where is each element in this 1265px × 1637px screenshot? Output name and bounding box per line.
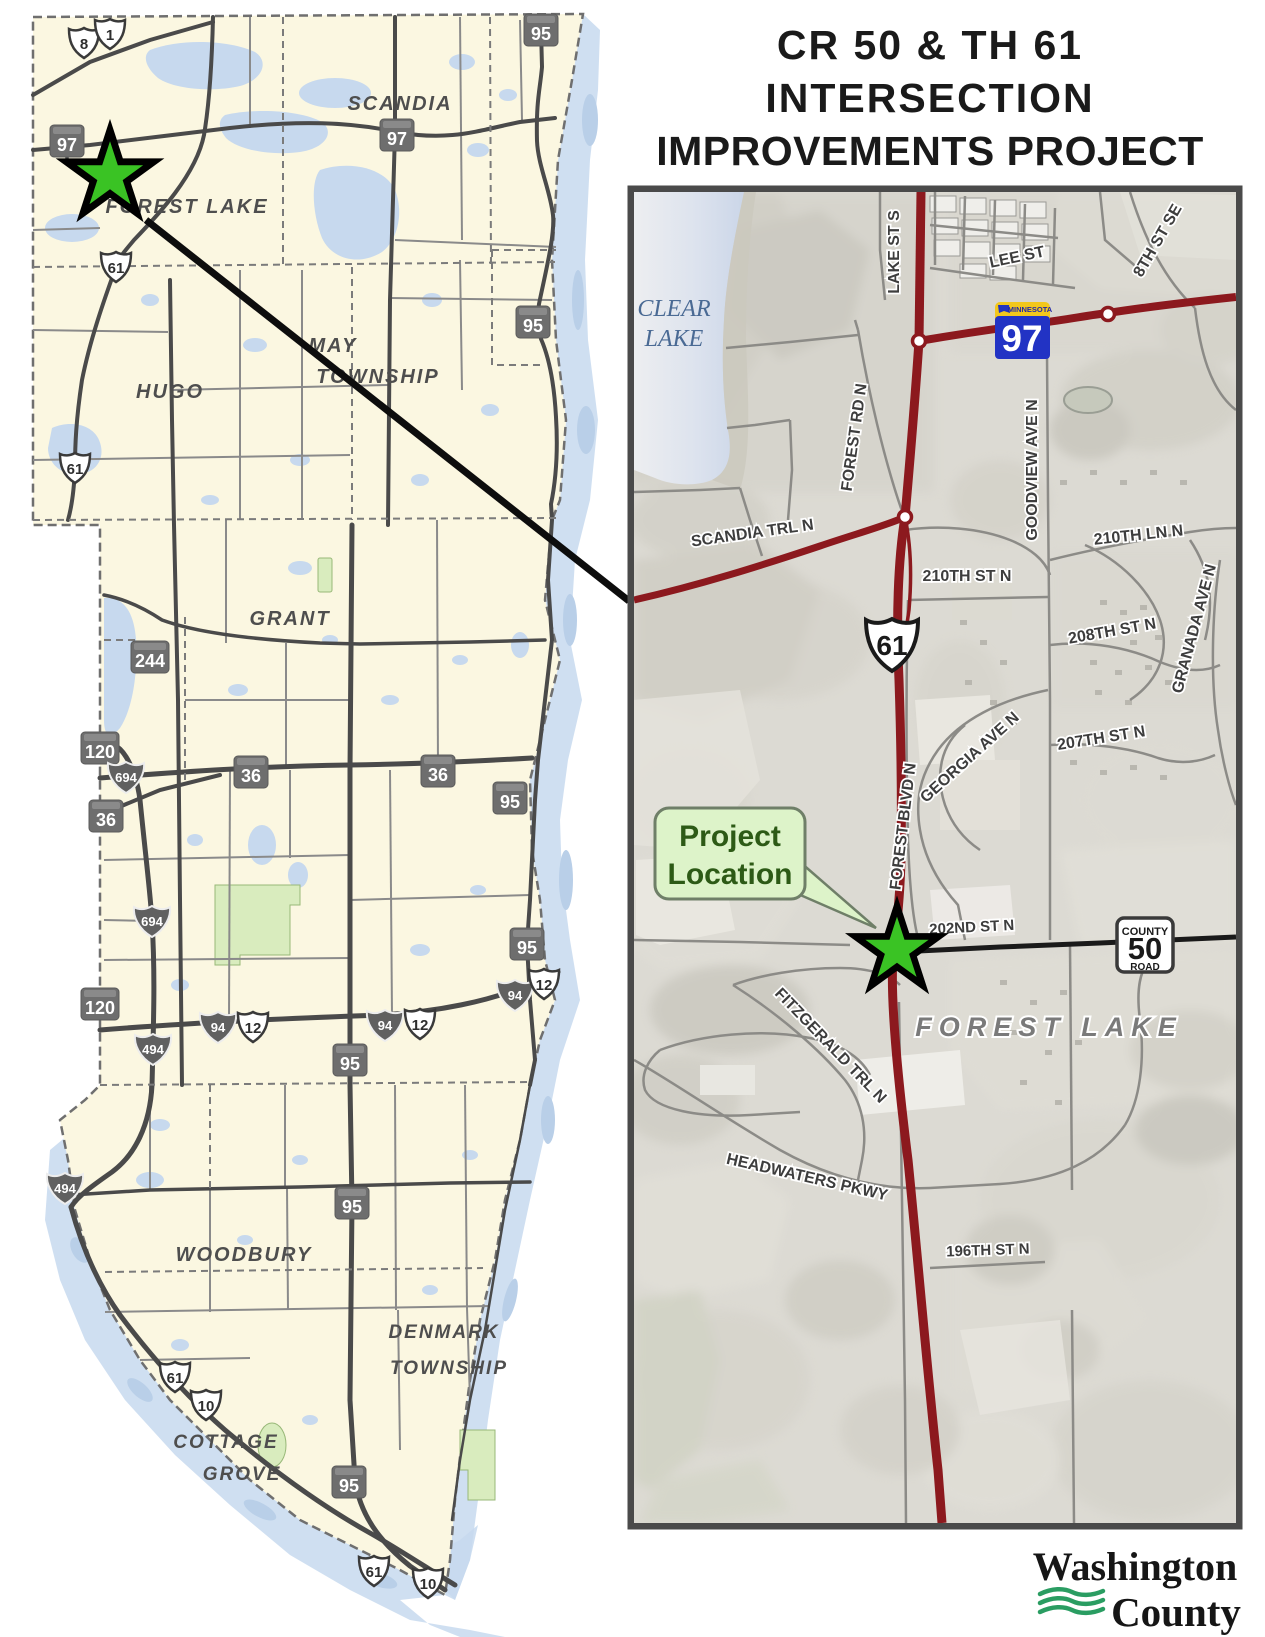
svg-text:1: 1 [106,27,114,44]
svg-text:95: 95 [517,938,537,958]
svg-text:61: 61 [366,1564,383,1581]
svg-text:8: 8 [80,36,88,53]
svg-text:ROAD: ROAD [1130,962,1159,973]
svg-text:97: 97 [387,129,407,149]
svg-text:95: 95 [531,24,551,44]
svg-text:97: 97 [57,135,77,155]
svg-text:120: 120 [85,998,115,1018]
svg-text:IMPROVEMENTS PROJECT: IMPROVEMENTS PROJECT [656,128,1204,174]
svg-text:694: 694 [115,770,137,785]
svg-text:10: 10 [198,1398,215,1415]
svg-text:120: 120 [85,742,115,762]
svg-text:97: 97 [1001,318,1042,359]
svg-text:GOODVIEW AVE N: GOODVIEW AVE N [1024,399,1041,540]
svg-text:LAKE: LAKE [644,326,704,352]
svg-text:95: 95 [523,316,543,336]
svg-text:196TH ST N: 196TH ST N [946,1241,1030,1261]
svg-text:12: 12 [245,1020,262,1037]
svg-text:INTERSECTION: INTERSECTION [765,75,1094,121]
svg-text:Project: Project [679,820,781,853]
svg-text:Washington: Washington [1033,1544,1238,1589]
svg-text:95: 95 [342,1197,362,1217]
svg-text:TOWNSHIP: TOWNSHIP [390,1358,508,1379]
svg-text:694: 694 [141,914,163,929]
svg-text:61: 61 [167,1370,184,1387]
svg-text:36: 36 [428,765,448,785]
svg-text:GROVE: GROVE [203,1464,282,1485]
svg-text:COTTAGE: COTTAGE [173,1432,278,1453]
svg-text:GRANT: GRANT [249,608,330,630]
svg-text:Location: Location [668,858,793,891]
svg-text:95: 95 [340,1054,360,1074]
svg-text:MINNESOTA: MINNESOTA [1008,305,1053,314]
svg-text:12: 12 [412,1017,429,1034]
svg-text:50: 50 [1128,931,1162,966]
svg-text:10: 10 [420,1576,437,1593]
svg-text:SCANDIA: SCANDIA [347,93,452,115]
svg-text:36: 36 [241,766,261,786]
svg-text:61: 61 [876,630,907,661]
svg-text:HUGO: HUGO [136,381,204,403]
svg-text:LAKE ST S: LAKE ST S [886,210,903,294]
svg-text:36: 36 [96,810,116,830]
svg-text:95: 95 [500,792,520,812]
svg-text:210TH ST N: 210TH ST N [923,568,1012,585]
svg-text:61: 61 [67,461,84,478]
svg-text:County: County [1111,1589,1241,1635]
svg-text:95: 95 [339,1476,359,1496]
svg-text:CLEAR: CLEAR [637,296,711,322]
svg-text:244: 244 [135,651,165,671]
svg-text:494: 494 [54,1181,76,1196]
svg-text:CR 50 & TH 61: CR 50 & TH 61 [777,22,1083,68]
svg-text:61: 61 [108,260,125,277]
svg-text:94: 94 [508,988,523,1003]
svg-text:WOODBURY: WOODBURY [176,1244,313,1266]
svg-text:494: 494 [142,1042,164,1057]
svg-text:FOREST LAKE: FOREST LAKE [915,1012,1183,1042]
svg-text:94: 94 [378,1018,393,1033]
svg-text:12: 12 [536,977,553,994]
svg-text:DENMARK: DENMARK [388,1322,499,1343]
svg-text:94: 94 [211,1020,226,1035]
